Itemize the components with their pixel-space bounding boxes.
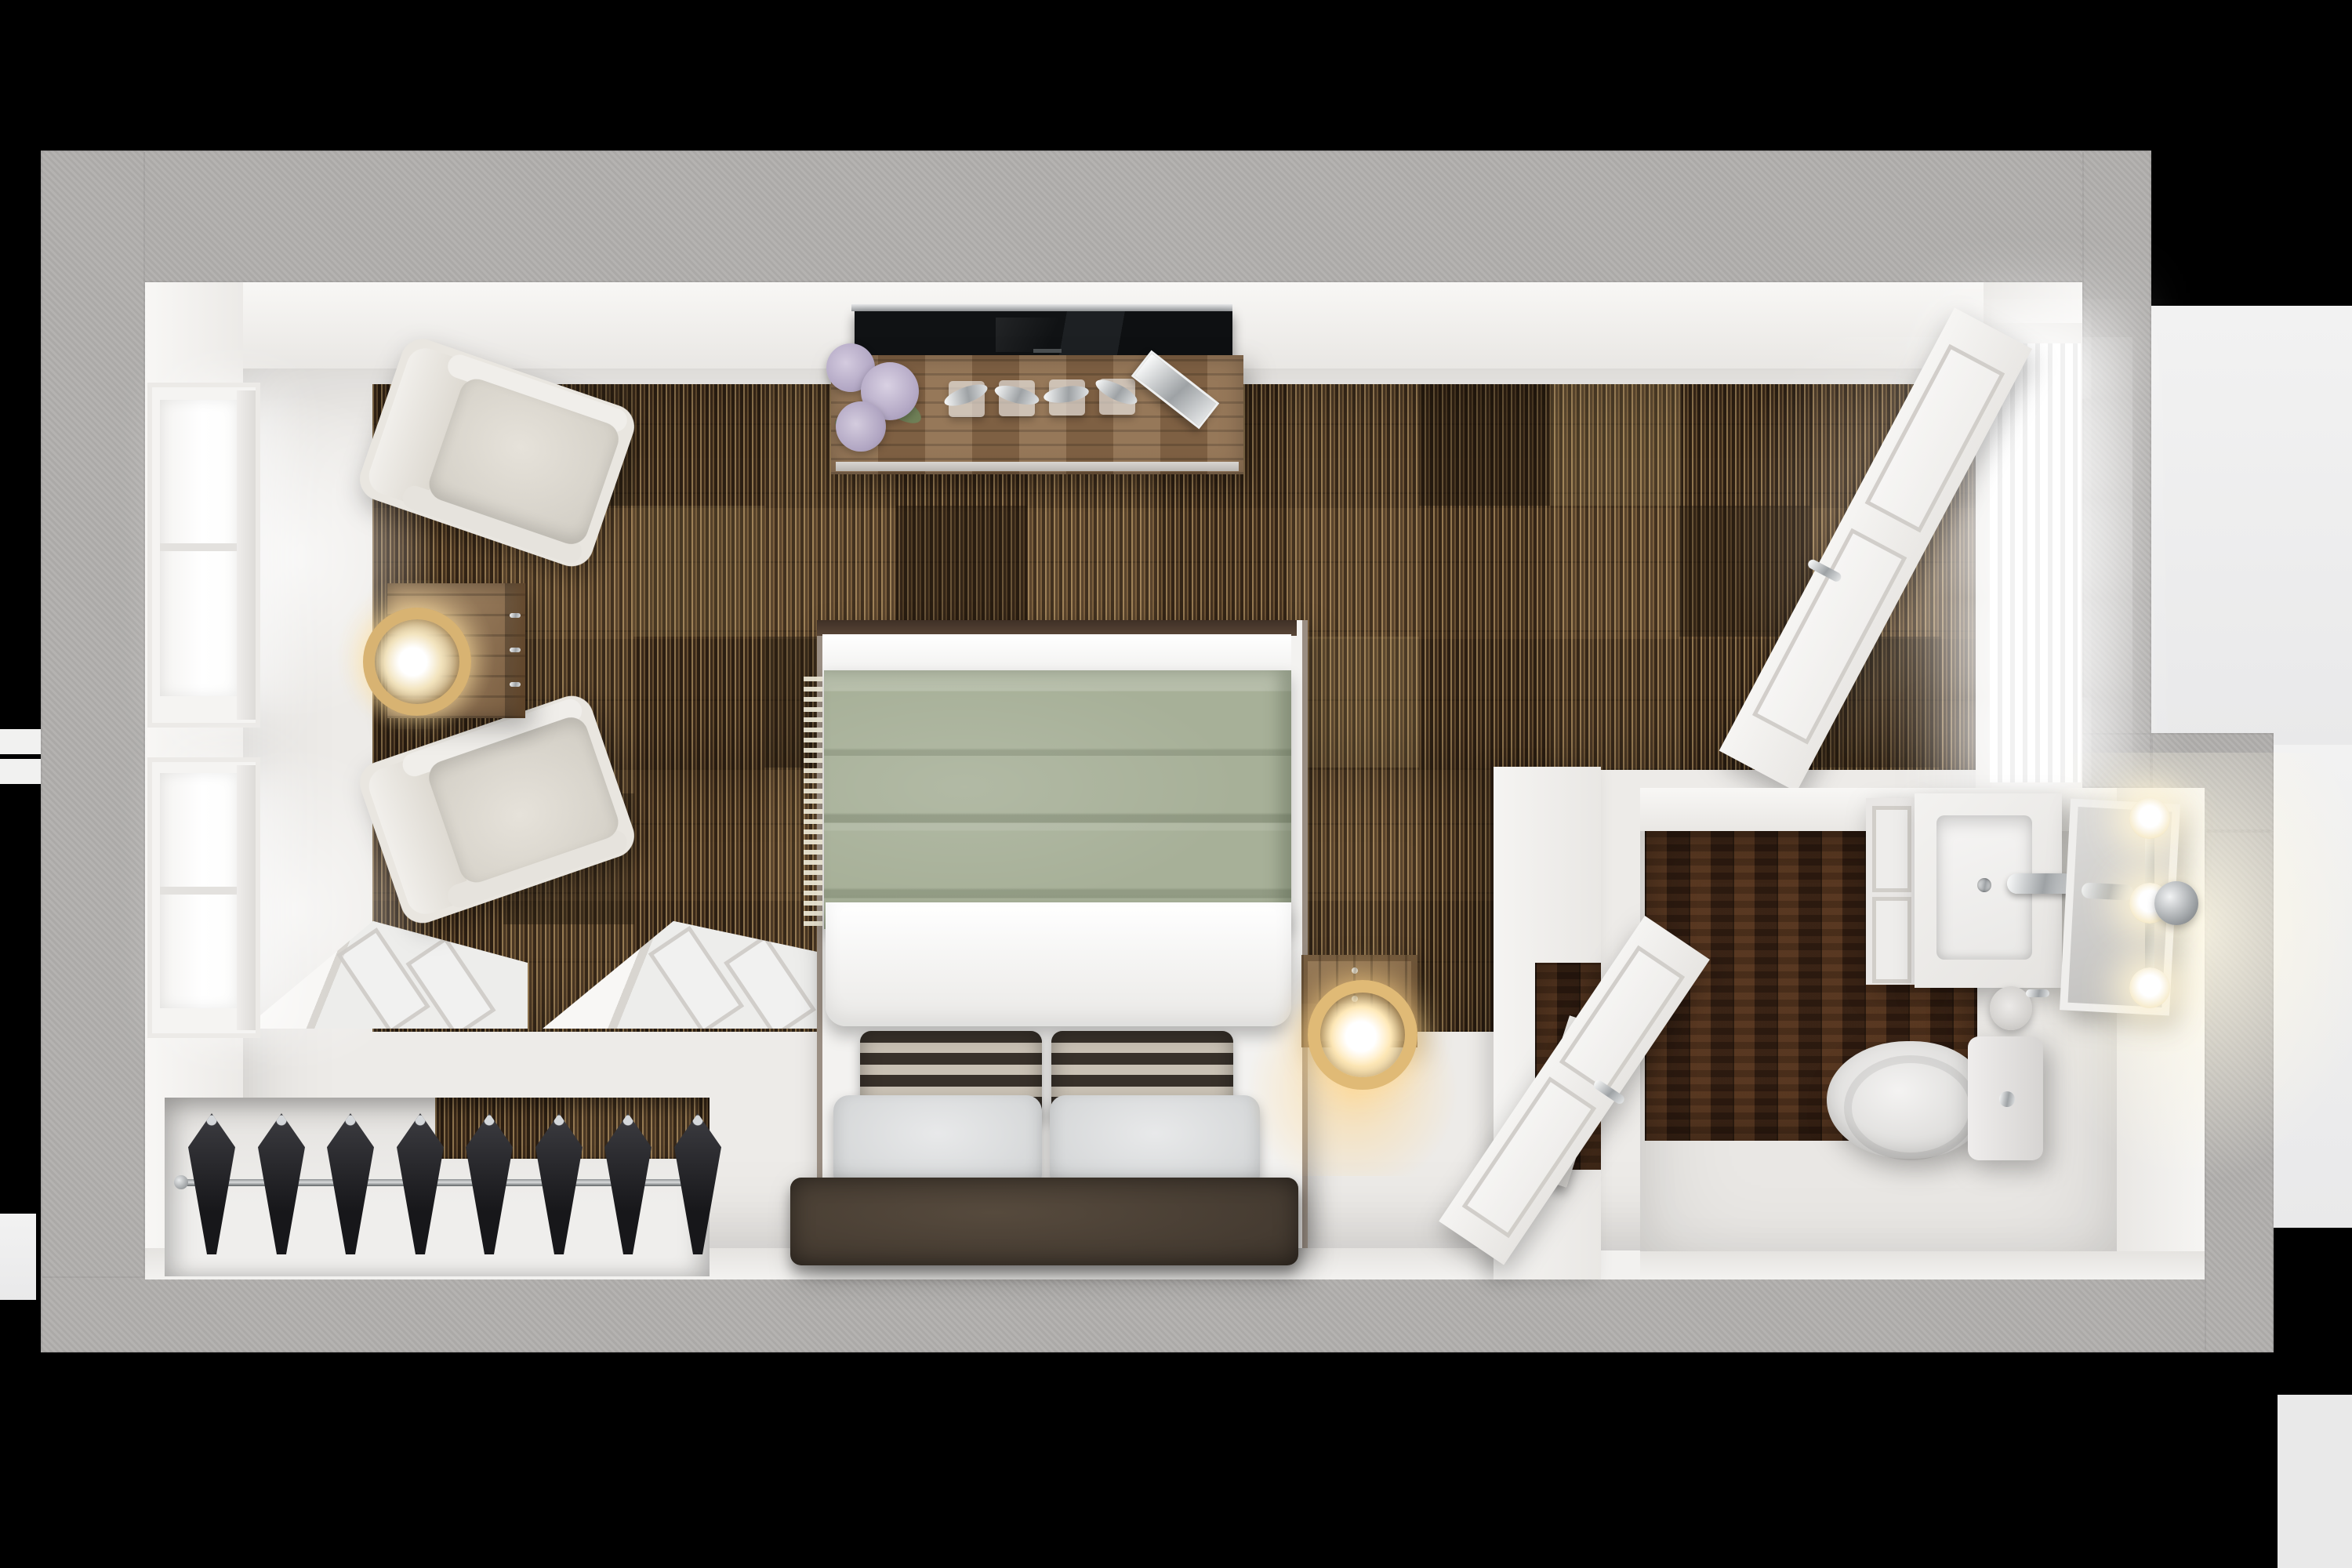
window-1-sill — [237, 390, 256, 720]
gray-pillow-left — [833, 1095, 1042, 1191]
wall-outer-bottom — [41, 1276, 2274, 1352]
toilet-tank — [1968, 1036, 2043, 1160]
wall-outer-left — [41, 151, 145, 1352]
toilet-bowl — [1827, 1041, 1987, 1159]
headboard — [790, 1178, 1298, 1265]
white-duvet-fold — [826, 902, 1291, 1026]
wall-outer-east-bedroom — [2082, 151, 2151, 745]
nightstand-hardware — [1352, 967, 1358, 974]
faucet — [2007, 873, 2074, 894]
door-panel-groove — [648, 926, 744, 1035]
bed — [817, 620, 1308, 1248]
nightstand-ring-lamp — [1308, 980, 1417, 1090]
sconce-bulb-top — [2129, 798, 2170, 839]
carpet-tile-light — [633, 506, 764, 637]
toilet-paper-holder-arm — [2026, 989, 2049, 997]
window-2 — [147, 757, 260, 1038]
window-1-sash-divider — [160, 543, 237, 551]
background-corner-bottom-right — [2278, 1395, 2352, 1568]
drawer-knob — [510, 613, 521, 618]
door-panel-groove — [405, 936, 495, 1037]
gray-pillow-right — [1050, 1095, 1260, 1191]
vanity-drawer-panel — [1872, 897, 1911, 983]
bed-foot-rail — [817, 620, 1297, 636]
vanity-sink-cabinet — [1915, 793, 2062, 988]
closet-rod-end-cap — [174, 1175, 188, 1189]
background-right-upper — [2151, 306, 2352, 745]
drawer-knob — [510, 682, 521, 687]
blanket-fringe — [804, 675, 822, 926]
carpet-tile-light — [1288, 637, 1419, 768]
mirror-faucet-reflection — [2082, 882, 2134, 900]
window-1 — [147, 383, 260, 728]
sconce-bulb-bottom — [2129, 967, 2170, 1008]
hydrangea-flower — [836, 401, 886, 452]
toilet-seat-ring — [1844, 1055, 1977, 1160]
green-throw-blanket — [824, 670, 1291, 929]
wall-bathroom-east — [2205, 831, 2274, 1352]
background-right-lower — [2274, 745, 2352, 1228]
tv-reflection — [996, 318, 1090, 352]
console-front-edge — [836, 462, 1239, 471]
floorplan-render — [0, 0, 2352, 1568]
door-panel-groove — [724, 935, 816, 1038]
drawer-knob — [510, 648, 521, 652]
bathroom-wall-face-south — [1640, 1251, 2205, 1279]
wall-outer-top — [41, 151, 2151, 282]
window-2-sill — [237, 765, 256, 1030]
entry-doorway-glow — [1990, 343, 2081, 782]
sconce-wall-flange — [2154, 881, 2198, 925]
table-ring-lamp — [363, 608, 471, 716]
door-panel-groove — [336, 927, 430, 1034]
carpet-tile — [1419, 384, 1550, 506]
tv-top-rail — [851, 304, 1232, 311]
toilet-flush-button — [1999, 1091, 2015, 1107]
carpet-tile — [896, 506, 1027, 637]
vanity-drawers — [1866, 798, 1915, 985]
tv-screen — [855, 311, 1232, 358]
background-left-patch — [0, 1214, 36, 1300]
window-2-sash-divider — [160, 887, 237, 895]
sink-drain — [1977, 878, 1991, 892]
carpet-tile-light — [1550, 384, 1681, 506]
vanity-drawer-panel — [1872, 806, 1911, 892]
tv-logo — [1033, 349, 1062, 353]
